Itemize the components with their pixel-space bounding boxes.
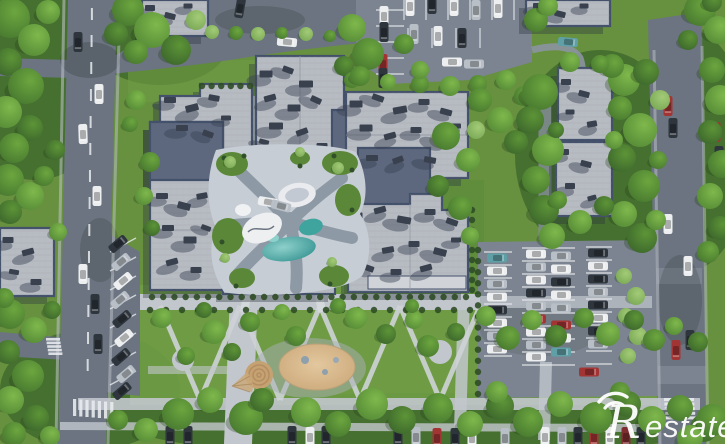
render-canvas: R estate	[0, 0, 725, 444]
watermark-text: estate	[645, 409, 725, 444]
aerial-masterplan-render: R estate	[0, 0, 725, 444]
lot-connector-south	[648, 366, 706, 384]
sand-area	[279, 344, 355, 390]
watermark-letter: R	[605, 395, 641, 444]
